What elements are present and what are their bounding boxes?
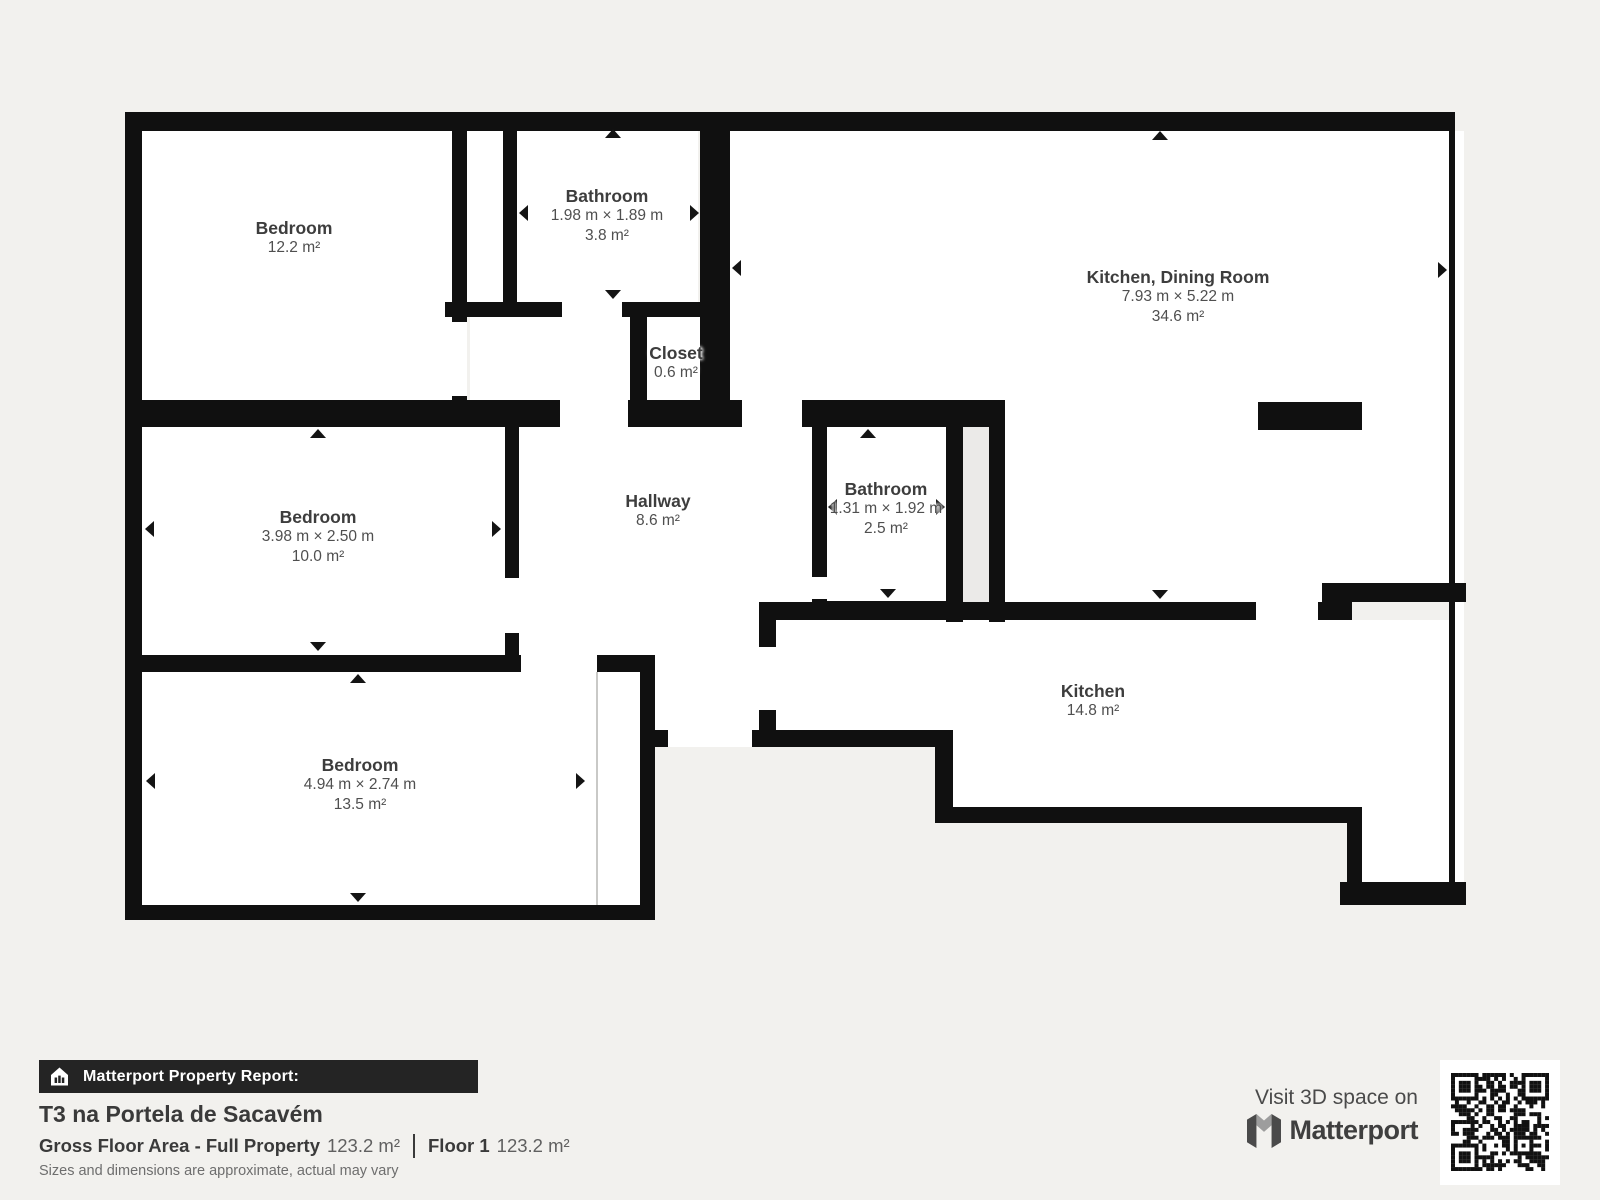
qr-module — [1533, 1100, 1537, 1104]
qr-module — [1533, 1112, 1537, 1116]
qr-module — [1545, 1097, 1549, 1101]
qr-module — [1451, 1159, 1455, 1163]
house-icon — [50, 1067, 69, 1086]
qr-module — [1463, 1128, 1467, 1132]
qr-module — [1490, 1108, 1494, 1112]
room-floor — [517, 128, 698, 302]
qr-module — [1498, 1108, 1502, 1112]
qr-module — [1471, 1136, 1475, 1140]
qr-module — [1498, 1167, 1502, 1171]
qr-module — [1475, 1144, 1479, 1148]
report-bar-label: Matterport Property Report: — [83, 1068, 299, 1086]
qr-module — [1478, 1108, 1482, 1112]
qr-module — [1486, 1167, 1490, 1171]
qr-module — [1467, 1128, 1471, 1132]
qr-module — [1522, 1093, 1526, 1097]
gfa-label: Gross Floor Area - Full Property — [39, 1135, 320, 1157]
qr-module — [1467, 1140, 1471, 1144]
qr-module — [1475, 1089, 1479, 1093]
qr-module — [1486, 1073, 1490, 1077]
qr-module — [1498, 1136, 1502, 1140]
qr-module — [1482, 1116, 1486, 1120]
qr-module — [1529, 1159, 1533, 1163]
qr-module — [1467, 1073, 1471, 1077]
qr-module — [1541, 1155, 1545, 1159]
floor-label: Floor 1 — [428, 1135, 490, 1157]
door-opening — [759, 647, 776, 710]
qr-module — [1490, 1163, 1494, 1167]
qr-module — [1545, 1147, 1549, 1151]
qr-module — [1451, 1144, 1455, 1148]
qr-module — [1459, 1112, 1463, 1116]
qr-module — [1478, 1077, 1482, 1081]
qr-module — [1541, 1124, 1545, 1128]
qr-module — [1502, 1136, 1506, 1140]
qr-module — [1545, 1085, 1549, 1089]
qr-module — [1522, 1081, 1526, 1085]
qr-module — [1490, 1089, 1494, 1093]
qr-module — [1475, 1136, 1479, 1140]
qr-module — [1498, 1163, 1502, 1167]
qr-module — [1459, 1155, 1463, 1159]
qr-module — [1541, 1167, 1545, 1171]
qr-module — [1537, 1155, 1541, 1159]
qr-module — [1490, 1085, 1494, 1089]
floor-plan — [0, 0, 1600, 1200]
qr-module — [1537, 1097, 1541, 1101]
qr-module — [1498, 1073, 1502, 1077]
qr-module — [1537, 1144, 1541, 1148]
qr-module — [1506, 1140, 1510, 1144]
qr-module — [1533, 1144, 1537, 1148]
qr-module — [1471, 1108, 1475, 1112]
separator-bar — [413, 1134, 415, 1158]
qr-module — [1498, 1089, 1502, 1093]
qr-module — [1510, 1128, 1514, 1132]
wall-segment — [935, 747, 953, 823]
qr-module — [1522, 1163, 1526, 1167]
qr-module — [1486, 1136, 1490, 1140]
qr-module — [1463, 1085, 1467, 1089]
qr-module — [1514, 1159, 1518, 1163]
qr-module — [1525, 1073, 1529, 1077]
qr-module — [1506, 1144, 1510, 1148]
qr-module — [1490, 1097, 1494, 1101]
qr-module — [1455, 1144, 1459, 1148]
qr-module — [1522, 1073, 1526, 1077]
qr-module — [1518, 1155, 1522, 1159]
qr-module — [1502, 1108, 1506, 1112]
qr-module — [1478, 1100, 1482, 1104]
qr-module — [1533, 1159, 1537, 1163]
qr-module — [1463, 1132, 1467, 1136]
qr-module — [1525, 1163, 1529, 1167]
qr-module — [1514, 1124, 1518, 1128]
qr-module — [1494, 1128, 1498, 1132]
qr-module — [1498, 1124, 1502, 1128]
qr-module — [1471, 1073, 1475, 1077]
qr-module — [1490, 1124, 1494, 1128]
report-bar: Matterport Property Report: — [39, 1060, 478, 1093]
qr-module — [1518, 1081, 1522, 1085]
qr-module — [1525, 1124, 1529, 1128]
property-title: T3 na Portela de Sacavém — [39, 1101, 323, 1128]
qr-module — [1529, 1112, 1533, 1116]
qr-module — [1475, 1104, 1479, 1108]
wall-segment — [125, 905, 655, 920]
shaft — [963, 427, 989, 605]
qr-module — [1486, 1081, 1490, 1085]
qr-module — [1494, 1073, 1498, 1077]
qr-module — [1482, 1163, 1486, 1167]
qr-module — [1490, 1073, 1494, 1077]
qr-module — [1498, 1159, 1502, 1163]
qr-module — [1529, 1151, 1533, 1155]
qr-module — [1525, 1136, 1529, 1140]
door-opening — [812, 577, 827, 599]
qr-module — [1533, 1136, 1537, 1140]
qr-module — [1533, 1073, 1537, 1077]
room-floor — [467, 128, 508, 303]
qr-module — [1486, 1085, 1490, 1089]
wall-segment — [989, 405, 1005, 622]
qr-module — [1494, 1151, 1498, 1155]
wall-segment — [125, 112, 1455, 131]
qr-module — [1467, 1085, 1471, 1089]
qr-module — [1545, 1155, 1549, 1159]
qr-module — [1502, 1077, 1506, 1081]
qr-module — [1525, 1097, 1529, 1101]
qr-module — [1502, 1151, 1506, 1155]
room-floor — [776, 620, 1449, 730]
qr-module — [1498, 1097, 1502, 1101]
qr-module — [1475, 1147, 1479, 1151]
qr-module — [1475, 1163, 1479, 1167]
wall-segment — [630, 302, 647, 427]
qr-module — [1467, 1081, 1471, 1085]
qr-module — [1522, 1077, 1526, 1081]
wall-segment — [700, 112, 730, 427]
qr-module — [1471, 1167, 1475, 1171]
qr-module — [1514, 1085, 1518, 1089]
room-floors — [142, 128, 1464, 905]
qr-module — [1494, 1132, 1498, 1136]
qr-module — [1537, 1124, 1541, 1128]
qr-module — [1459, 1073, 1463, 1077]
wall-segment — [1258, 402, 1362, 430]
floor-area-line: Gross Floor Area - Full Property 123.2 m… — [39, 1134, 570, 1158]
wall-segment — [125, 400, 560, 427]
qr-module — [1459, 1081, 1463, 1085]
qr-module — [1475, 1128, 1479, 1132]
qr-module — [1541, 1159, 1545, 1163]
qr-module — [1451, 1167, 1455, 1171]
room-floor — [935, 730, 1449, 807]
qr-module — [1463, 1167, 1467, 1171]
qr-module — [1541, 1104, 1545, 1108]
qr-module — [1506, 1136, 1510, 1140]
qr-module — [1525, 1151, 1529, 1155]
room-floor — [142, 427, 505, 655]
qr-module — [1510, 1151, 1514, 1155]
qr-module — [1471, 1132, 1475, 1136]
qr-module — [1498, 1085, 1502, 1089]
qr-module — [1506, 1120, 1510, 1124]
qr-module — [1498, 1081, 1502, 1085]
qr-module — [1502, 1085, 1506, 1089]
qr-module — [1463, 1140, 1467, 1144]
qr-module — [1459, 1144, 1463, 1148]
qr-module — [1482, 1136, 1486, 1140]
qr-module — [1514, 1081, 1518, 1085]
qr-module — [1518, 1163, 1522, 1167]
qr-module — [1463, 1097, 1467, 1101]
qr-module — [1455, 1120, 1459, 1124]
qr-module — [1525, 1100, 1529, 1104]
qr-module — [1537, 1120, 1541, 1124]
qr-module — [1467, 1144, 1471, 1148]
qr-module — [1514, 1104, 1518, 1108]
partition-lines — [596, 672, 598, 905]
qr-module — [1490, 1128, 1494, 1132]
door-opening — [742, 400, 802, 427]
qr-module — [1541, 1163, 1545, 1167]
qr-module — [1537, 1163, 1541, 1167]
qr-module — [1518, 1112, 1522, 1116]
qr-module — [1498, 1132, 1502, 1136]
qr-module — [1467, 1155, 1471, 1159]
qr-module — [1482, 1144, 1486, 1148]
qr-module — [1518, 1128, 1522, 1132]
qr-code — [1451, 1073, 1549, 1171]
qr-module — [1522, 1124, 1526, 1128]
qr-module — [1522, 1132, 1526, 1136]
qr-module — [1494, 1089, 1498, 1093]
qr-module — [1545, 1132, 1549, 1136]
qr-module — [1529, 1147, 1533, 1151]
qr-module — [1451, 1093, 1455, 1097]
wall-segment — [1322, 583, 1466, 602]
qr-module — [1486, 1132, 1490, 1136]
qr-module — [1525, 1128, 1529, 1132]
qr-module — [1514, 1136, 1518, 1140]
qr-module — [1475, 1073, 1479, 1077]
qr-module — [1522, 1128, 1526, 1132]
qr-module — [1478, 1124, 1482, 1128]
qr-module — [1514, 1112, 1518, 1116]
qr-module — [1482, 1147, 1486, 1151]
qr-module — [1490, 1151, 1494, 1155]
qr-module — [1467, 1132, 1471, 1136]
qr-module — [1451, 1120, 1455, 1124]
qr-module — [1475, 1155, 1479, 1159]
qr-module — [1514, 1132, 1518, 1136]
room-floor — [1362, 807, 1449, 882]
qr-module — [1502, 1104, 1506, 1108]
qr-module — [1510, 1073, 1514, 1077]
wall-segment — [1340, 882, 1466, 905]
qr-module — [1506, 1159, 1510, 1163]
door-opening — [521, 655, 597, 672]
qr-module — [1502, 1140, 1506, 1144]
qr-module — [1494, 1163, 1498, 1167]
qr-module — [1455, 1132, 1459, 1136]
qr-module — [1533, 1151, 1537, 1155]
qr-module — [1482, 1089, 1486, 1093]
qr-module — [1545, 1116, 1549, 1120]
qr-module — [1451, 1089, 1455, 1093]
qr-module — [1463, 1151, 1467, 1155]
qr-module — [1455, 1100, 1459, 1104]
qr-module — [1482, 1159, 1486, 1163]
qr-module — [1455, 1104, 1459, 1108]
qr-module — [1451, 1104, 1455, 1108]
qr-module — [1451, 1128, 1455, 1132]
floor-value: 123.2 m² — [497, 1135, 570, 1157]
qr-module — [1471, 1124, 1475, 1128]
qr-module — [1451, 1132, 1455, 1136]
qr-module — [1514, 1120, 1518, 1124]
qr-module — [1490, 1081, 1494, 1085]
qr-module — [1529, 1085, 1533, 1089]
qr-module — [1522, 1097, 1526, 1101]
qr-module — [1529, 1155, 1533, 1159]
qr-module — [1494, 1077, 1498, 1081]
qr-module — [1537, 1081, 1541, 1085]
qr-module — [1494, 1093, 1498, 1097]
qr-module — [1467, 1097, 1471, 1101]
qr-module — [1506, 1147, 1510, 1151]
qr-module — [1451, 1124, 1455, 1128]
wall-segment — [1449, 131, 1455, 884]
qr-module — [1518, 1100, 1522, 1104]
qr-module — [1518, 1159, 1522, 1163]
qr-module — [1451, 1147, 1455, 1151]
qr-module — [1459, 1085, 1463, 1089]
qr-module — [1482, 1120, 1486, 1124]
wall-segment — [935, 807, 1351, 823]
qr-module — [1455, 1167, 1459, 1171]
qr-module — [1498, 1120, 1502, 1124]
qr-module — [1545, 1077, 1549, 1081]
qr-module — [1533, 1085, 1537, 1089]
qr-module — [1471, 1116, 1475, 1120]
qr-module — [1529, 1132, 1533, 1136]
qr-module — [1510, 1081, 1514, 1085]
qr-module — [1451, 1163, 1455, 1167]
qr-module — [1533, 1089, 1537, 1093]
wall-segment — [503, 112, 517, 317]
qr-module — [1463, 1159, 1467, 1163]
qr-module — [1459, 1097, 1463, 1101]
qr-module — [1522, 1120, 1526, 1124]
qr-module — [1475, 1159, 1479, 1163]
qr-module — [1471, 1120, 1475, 1124]
qr-module — [1525, 1167, 1529, 1171]
qr-module — [1533, 1128, 1537, 1132]
qr-module — [1518, 1136, 1522, 1140]
qr-module — [1506, 1100, 1510, 1104]
qr-module — [1514, 1140, 1518, 1144]
qr-module — [1494, 1144, 1498, 1148]
qr-module — [1518, 1124, 1522, 1128]
qr-module — [1486, 1104, 1490, 1108]
qr-module — [1486, 1112, 1490, 1116]
qr-module — [1486, 1163, 1490, 1167]
qr-module — [1490, 1155, 1494, 1159]
qr-module — [1529, 1104, 1533, 1108]
qr-module — [1475, 1085, 1479, 1089]
qr-module — [1490, 1104, 1494, 1108]
qr-module — [1533, 1097, 1537, 1101]
qr-module — [1506, 1093, 1510, 1097]
qr-module — [1533, 1132, 1537, 1136]
qr-module — [1459, 1120, 1463, 1124]
qr-module — [1518, 1132, 1522, 1136]
qr-module — [1490, 1093, 1494, 1097]
qr-module — [1510, 1085, 1514, 1089]
qr-module — [1478, 1085, 1482, 1089]
qr-module — [1451, 1155, 1455, 1159]
qr-module — [1525, 1120, 1529, 1124]
qr-module — [1459, 1167, 1463, 1171]
qr-module — [1459, 1108, 1463, 1112]
qr-module — [1522, 1085, 1526, 1089]
wall-segment — [640, 672, 655, 920]
qr-module — [1529, 1097, 1533, 1101]
qr-module — [1451, 1077, 1455, 1081]
qr-module — [1522, 1112, 1526, 1116]
qr-module — [1529, 1089, 1533, 1093]
qr-module — [1467, 1108, 1471, 1112]
qr-module — [1455, 1097, 1459, 1101]
door-opening — [452, 322, 467, 396]
qr-module — [1514, 1077, 1518, 1081]
qr-module — [1545, 1093, 1549, 1097]
wall-segment — [125, 112, 142, 920]
qr-module — [1502, 1163, 1506, 1167]
qr-module — [1463, 1155, 1467, 1159]
qr-module — [1463, 1073, 1467, 1077]
qr-module — [1545, 1073, 1549, 1077]
qr-module — [1514, 1108, 1518, 1112]
door-opening — [505, 578, 519, 633]
room-floor — [142, 131, 452, 400]
qr-module — [1529, 1140, 1533, 1144]
qr-module — [1537, 1073, 1541, 1077]
qr-module — [1486, 1120, 1490, 1124]
qr-module — [1482, 1073, 1486, 1077]
qr-module — [1502, 1128, 1506, 1132]
qr-module — [1478, 1140, 1482, 1144]
qr-module — [1467, 1159, 1471, 1163]
matterport-wordmark: Matterport — [1290, 1115, 1419, 1146]
qr-module — [1467, 1136, 1471, 1140]
qr-module — [1490, 1167, 1494, 1171]
qr-module — [1537, 1089, 1541, 1093]
qr-module — [1455, 1108, 1459, 1112]
qr-module — [1529, 1136, 1533, 1140]
partition-line — [596, 672, 598, 905]
qr-module — [1545, 1124, 1549, 1128]
matterport-logo-icon — [1247, 1112, 1281, 1148]
qr-module — [1463, 1108, 1467, 1112]
qr-module — [1498, 1104, 1502, 1108]
qr-module — [1525, 1155, 1529, 1159]
qr-module — [1455, 1073, 1459, 1077]
qr-module — [1478, 1155, 1482, 1159]
shafts — [963, 427, 989, 605]
